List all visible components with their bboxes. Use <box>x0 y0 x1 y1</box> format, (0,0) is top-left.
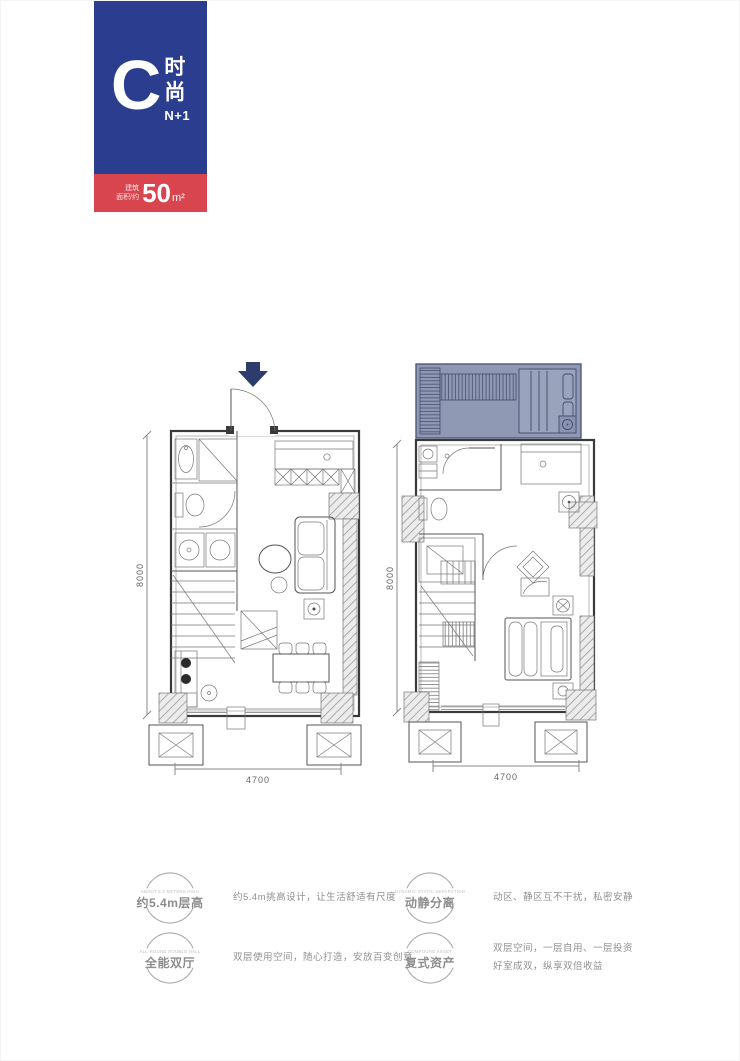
loft-nightstand <box>559 416 576 433</box>
feature-desc: 双层空间，一层自用、一层投资好室成双，纵享双倍收益 <box>493 940 633 976</box>
washer <box>175 533 204 567</box>
balcony-window <box>187 707 325 729</box>
feature-badge-icon: ALL-ROUND DOUBLE HALL 全能双厅 <box>131 931 209 985</box>
unit-letter: C <box>111 52 162 119</box>
counter-top-right <box>521 444 581 484</box>
column <box>569 502 597 528</box>
hanger-rail <box>443 622 475 646</box>
column-footing <box>149 725 203 765</box>
svg-text:COMPOUND ASSET: COMPOUND ASSET <box>408 949 452 954</box>
feature-badge-icon: ABOUT 5.4 METERS HIGH 约5.4m层高 <box>131 871 209 925</box>
loft-hanger-rail <box>440 374 516 400</box>
feature-item-ceiling-height: ABOUT 5.4 METERS HIGH 约5.4m层高 约5.4m挑高设计，… <box>131 871 391 925</box>
column <box>159 693 187 723</box>
column <box>566 690 596 720</box>
unit-type-card: C 时尚 N+1 <box>94 1 207 174</box>
bathroom <box>171 431 237 571</box>
feature-item-zone-separation: DYNAMIC STATIC SEPARATION 动静分离 动区、静区互不干扰… <box>391 871 651 925</box>
column <box>402 496 424 542</box>
floorplan-sheet: C 时尚 N+1 建筑面积/约 50 m² <box>0 0 740 1061</box>
column <box>321 693 353 723</box>
feature-item-double-hall: ALL-ROUND DOUBLE HALL 全能双厅 双层使用空间，随心打造，安… <box>131 931 391 985</box>
kitchen-sink <box>201 685 217 701</box>
entry-door <box>226 389 278 436</box>
feature-badge-icon: DYNAMIC STATIC SEPARATION 动静分离 <box>391 871 469 925</box>
staircase <box>171 571 237 663</box>
svg-text:8000: 8000 <box>135 563 145 587</box>
svg-text:ABOUT 5.4 METERS HIGH: ABOUT 5.4 METERS HIGH <box>141 889 199 894</box>
entry-arrow-icon <box>238 362 268 387</box>
nightstand <box>553 596 573 615</box>
svg-text:8000: 8000 <box>385 566 395 590</box>
unit-name: 时尚 <box>164 56 187 106</box>
feature-badge-icon: COMPOUND ASSET 复式资产 <box>391 931 469 985</box>
upper-floor-plan: 8000 4700 <box>383 356 628 786</box>
svg-text:4700: 4700 <box>494 772 518 782</box>
area-unit: m² <box>172 192 185 204</box>
unit-badge: C 时尚 N+1 建筑面积/约 50 m² <box>94 1 207 212</box>
feature-desc: 约5.4m挑高设计，让生活舒适有尺度 <box>233 889 396 907</box>
column-footing <box>307 725 361 765</box>
sofa <box>295 517 335 593</box>
ottoman <box>259 545 291 573</box>
dimension-width: 4700 <box>175 763 341 785</box>
feature-list: ABOUT 5.4 METERS HIGH 约5.4m层高 约5.4m挑高设计，… <box>131 871 651 985</box>
kitchen-counter-top-right <box>275 441 353 469</box>
area-label: 建筑面积/约 <box>116 184 139 202</box>
lower-floor-plan: 8000 4700 <box>129 359 379 789</box>
storage-cabinet <box>241 611 277 649</box>
loft-overlay <box>416 364 581 438</box>
svg-text:动静分离: 动静分离 <box>405 895 455 910</box>
area-value: 50 <box>142 180 171 206</box>
feature-desc: 动区、静区互不干扰，私密安静 <box>493 889 633 907</box>
hatched-wall <box>343 519 357 695</box>
dimension-height: 8000 <box>385 440 401 716</box>
svg-text:4700: 4700 <box>246 775 270 785</box>
column <box>404 692 429 722</box>
svg-text:全能双厅: 全能双厅 <box>144 955 195 970</box>
tv-unit <box>304 599 324 619</box>
svg-text:复式资产: 复式资产 <box>404 955 455 970</box>
stool <box>271 577 287 593</box>
svg-text:ALL-ROUND DOUBLE HALL: ALL-ROUND DOUBLE HALL <box>140 949 201 954</box>
loft-wardrobe <box>420 368 440 434</box>
column <box>329 493 359 519</box>
svg-text:约5.4m层高: 约5.4m层高 <box>137 895 204 910</box>
dimension-width: 4700 <box>433 760 579 782</box>
dryer <box>206 533 235 567</box>
dimension-height: 8000 <box>135 431 151 719</box>
bed <box>505 618 571 680</box>
unit-area-card: 建筑面积/约 50 m² <box>94 174 207 212</box>
column-footing <box>409 722 461 762</box>
unit-sub: N+1 <box>164 108 190 123</box>
feature-desc: 双层使用空间，随心打造，安放百变创意 <box>233 949 413 967</box>
svg-text:DYNAMIC STATIC SEPARATION: DYNAMIC STATIC SEPARATION <box>395 889 465 894</box>
column-footing <box>535 722 587 762</box>
dining-table <box>273 643 329 693</box>
feature-item-compound-asset: COMPOUND ASSET 复式资产 双层空间，一层自用、一层投资好室成双，纵… <box>391 931 651 985</box>
